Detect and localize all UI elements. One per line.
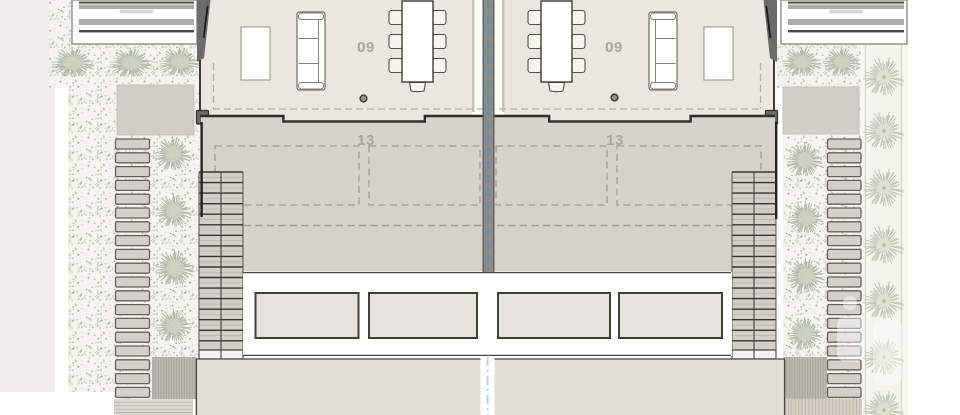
svg-text:13: 13 (357, 132, 375, 149)
svg-text:09: 09 (357, 39, 375, 56)
svg-text:13: 13 (606, 132, 624, 149)
svg-text:09: 09 (605, 39, 623, 56)
